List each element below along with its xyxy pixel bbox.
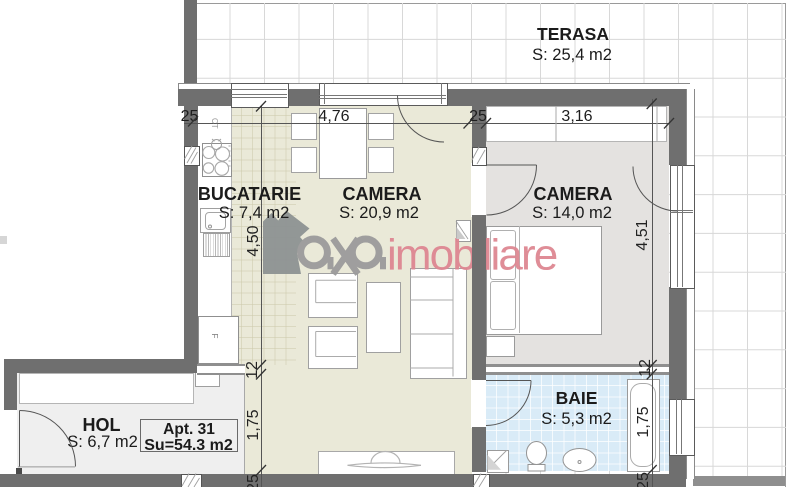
svg-text:CT: CT — [210, 118, 219, 129]
